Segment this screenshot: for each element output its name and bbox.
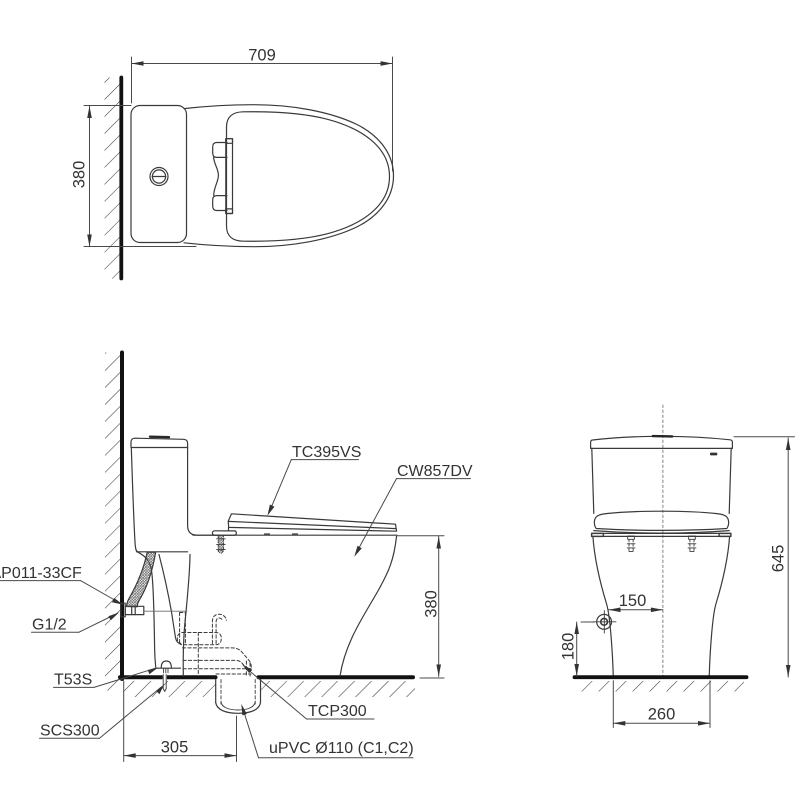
svg-text:TC395VS: TC395VS	[292, 444, 361, 461]
svg-text:380: 380	[423, 590, 441, 618]
svg-text:709: 709	[248, 47, 276, 65]
svg-text:CW857DV: CW857DV	[397, 463, 473, 480]
svg-text:G1/2: G1/2	[32, 617, 67, 634]
svg-text:380: 380	[71, 161, 89, 189]
svg-text:260: 260	[648, 706, 676, 724]
svg-text:T53S: T53S	[54, 672, 92, 689]
svg-text:TCP300: TCP300	[308, 703, 367, 720]
svg-text:AP011-33CF: AP011-33CF	[0, 565, 82, 582]
svg-text:150: 150	[619, 592, 647, 610]
svg-text:645: 645	[770, 545, 788, 573]
svg-text:SCS300: SCS300	[40, 723, 100, 740]
svg-text:305: 305	[161, 739, 189, 757]
svg-text:uPVC Ø110 (C1,C2): uPVC Ø110 (C1,C2)	[269, 740, 414, 757]
svg-text:180: 180	[560, 633, 578, 661]
